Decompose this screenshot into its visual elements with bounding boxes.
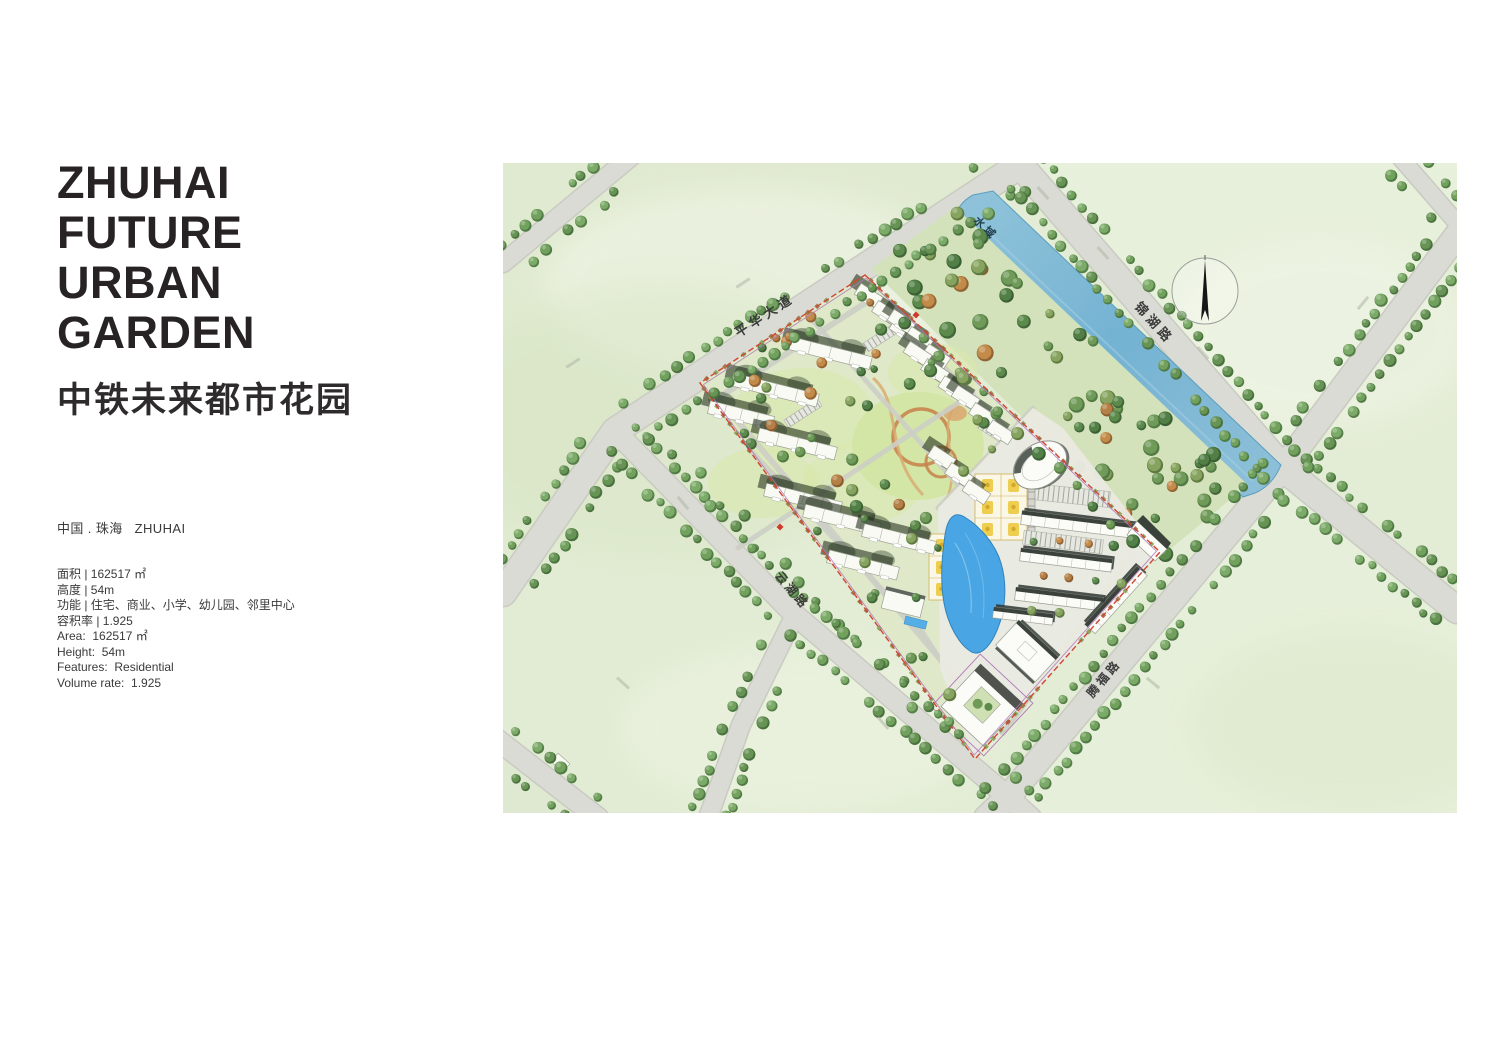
- project-location: 中国 . 珠海 ZHUHAI: [57, 518, 477, 537]
- stat-area-cn: 面积 | 162517 ㎡: [57, 567, 477, 583]
- stat-features-en: Features: Residential: [57, 660, 477, 676]
- stat-height-cn: 高度 | 54m: [57, 583, 477, 599]
- title-line-1: ZHUHAI: [57, 158, 477, 208]
- stat-volume-rate-en: Volume rate: 1.925: [57, 676, 477, 692]
- master-plan-svg: 平华大道 锦湖路 云湖路 腾福路 水域: [503, 163, 1457, 813]
- stat-far-cn: 容积率 | 1.925: [57, 614, 477, 630]
- project-name-cn: 中铁未来都市花园: [57, 372, 477, 423]
- page-title: ZHUHAI FUTURE URBAN GARDEN: [57, 158, 477, 358]
- title-line-4: GARDEN: [57, 308, 477, 358]
- stat-height-en: Height: 54m: [57, 645, 477, 661]
- title-line-2: FUTURE: [57, 208, 477, 258]
- site-master-plan: 平华大道 锦湖路 云湖路 腾福路 水域: [503, 163, 1457, 813]
- project-info-panel: ZHUHAI FUTURE URBAN GARDEN 中铁未来都市花园 中国 .…: [57, 158, 477, 691]
- stat-function-cn: 功能 | 住宅、商业、小学、幼儿园、邻里中心: [57, 598, 477, 614]
- project-stats: 面积 | 162517 ㎡ 高度 | 54m 功能 | 住宅、商业、小学、幼儿园…: [57, 567, 477, 691]
- stat-area-en: Area: 162517 ㎡: [57, 629, 477, 645]
- presentation-page: ZHUHAI FUTURE URBAN GARDEN 中铁未来都市花园 中国 .…: [0, 0, 1500, 1061]
- title-line-3: URBAN: [57, 258, 477, 308]
